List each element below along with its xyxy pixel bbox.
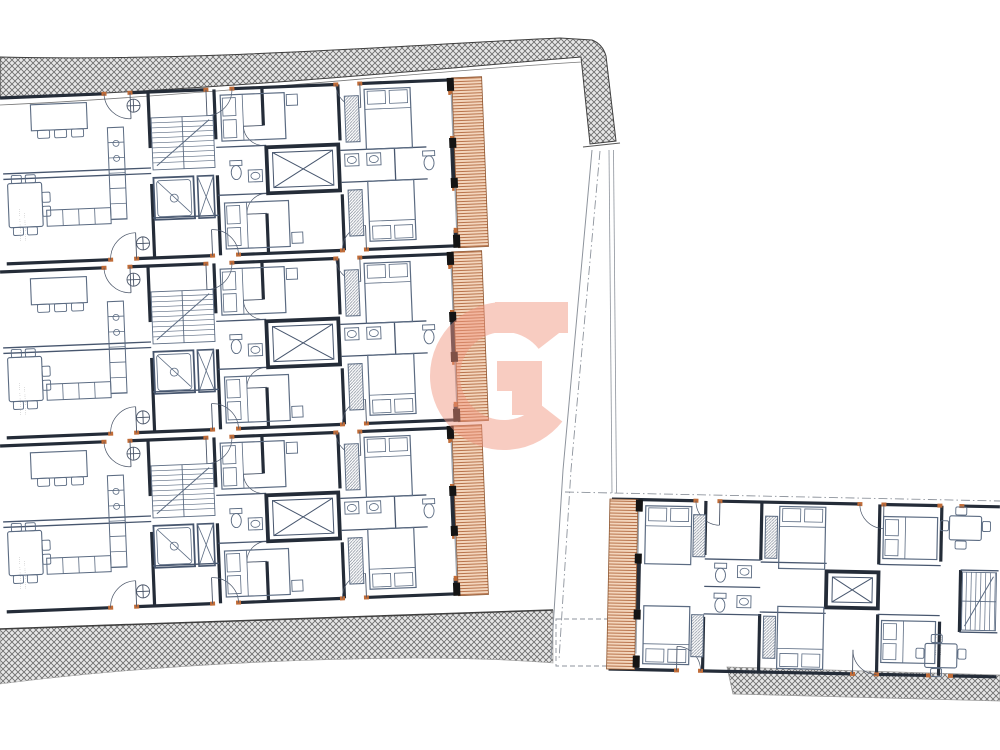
plot-boundary-v1 <box>609 150 612 493</box>
svg-text:···· ·· ····: ···· ·· ···· <box>939 633 943 656</box>
plot-boundary-solid <box>551 150 592 660</box>
apartment-unit-3: ··· ····· ·· ········ ·· ··· ··· <box>0 425 488 614</box>
apartment-unit-right: ··· ···· ······· ·· ···· <box>607 497 1000 679</box>
top-hatch-band <box>0 38 616 144</box>
floorplan-document: ··· ····· ·· ········ ·· ··· ······ ····… <box>0 0 1000 750</box>
right-building: ··· ···· ······· ·· ···· <box>607 497 1000 679</box>
floor-plan-drawing: ··· ····· ·· ········ ·· ··· ······ ····… <box>0 0 1000 750</box>
svg-text:···· ·· ··· ···: ···· ·· ··· ··· <box>23 560 28 589</box>
apartment-unit-2: ··· ····· ·· ········ ·· ··· ··· <box>0 251 488 440</box>
plot-boundary-dashdot <box>559 151 600 660</box>
svg-text:···· ·· ··· ···: ···· ·· ··· ··· <box>23 212 28 241</box>
svg-text:···· ·· ··· ···: ···· ·· ··· ··· <box>23 386 28 415</box>
svg-text:··· ···· ···: ··· ···· ··· <box>934 632 938 655</box>
left-building: ··· ····· ·· ········ ·· ··· ······ ····… <box>0 77 488 614</box>
bottom-left-hatch-band <box>0 610 553 684</box>
dashed-plot-rect <box>556 619 610 666</box>
band-corner-tick <box>583 143 620 147</box>
apartment-unit-1: ··· ····· ·· ········ ·· ··· ··· <box>0 77 488 266</box>
plot-boundary-v2 <box>614 150 617 493</box>
